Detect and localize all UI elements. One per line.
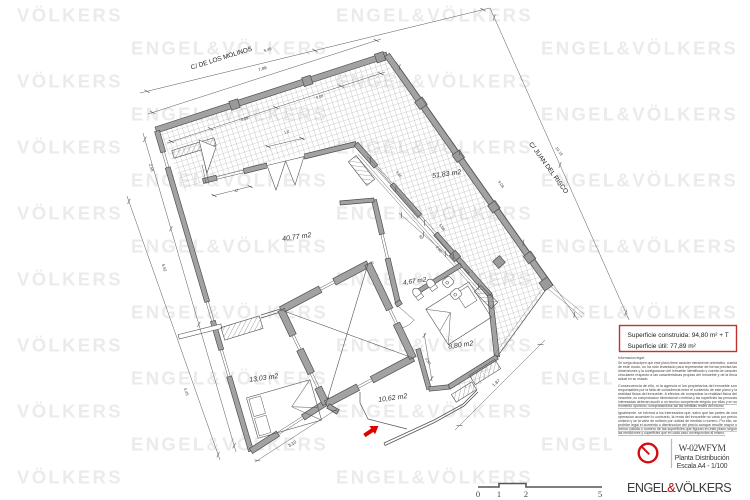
svg-text:ENGEL&VÖLKERS: ENGEL&VÖLKERS xyxy=(541,302,738,323)
svg-text:ENGEL&VÖLKERS: ENGEL&VÖLKERS xyxy=(336,5,533,26)
svg-text:W-02WFYM: W-02WFYM xyxy=(678,444,726,454)
svg-text:ENGEL&VÖLKERS: ENGEL&VÖLKERS xyxy=(541,38,738,59)
svg-text:VÖLKERS: VÖLKERS xyxy=(17,5,123,26)
svg-text:ENGEL&VÖLKERS: ENGEL&VÖLKERS xyxy=(131,434,328,455)
svg-text:ENGEL&VÖLKERS: ENGEL&VÖLKERS xyxy=(541,236,738,257)
svg-text:1: 1 xyxy=(497,489,501,499)
svg-text:ENGEL&VÖLKERS: ENGEL&VÖLKERS xyxy=(541,104,738,125)
svg-text:0: 0 xyxy=(476,489,480,499)
svg-text:VÖLKERS: VÖLKERS xyxy=(17,203,123,224)
svg-text:ENGEL&VÖLKERS: ENGEL&VÖLKERS xyxy=(336,401,533,422)
svg-text:las mediciones y superficies q: las mediciones y superficies que en cada… xyxy=(618,431,725,435)
svg-text:Escala A4 - 1/100: Escala A4 - 1/100 xyxy=(677,463,728,470)
svg-text:VÖLKERS: VÖLKERS xyxy=(17,71,123,92)
svg-text:Superficie útil: 77,89 m²: Superficie útil: 77,89 m² xyxy=(628,343,697,350)
svg-text:ENGEL&VÖLKERS: ENGEL&VÖLKERS xyxy=(627,481,731,495)
svg-text:Superficie construida: 94,80 m: Superficie construida: 94,80 m² + T xyxy=(628,332,729,339)
svg-text:Informacion legal:: Informacion legal: xyxy=(618,356,645,360)
svg-text:5: 5 xyxy=(598,489,602,499)
svg-text:VÖLKERS: VÖLKERS xyxy=(17,401,123,422)
svg-text:VÖLKERS: VÖLKERS xyxy=(17,269,123,290)
svg-text:ENGEL&VÖLKERS: ENGEL&VÖLKERS xyxy=(541,170,738,191)
svg-text:VÖLKERS: VÖLKERS xyxy=(17,335,123,356)
svg-text:Planta Distribución: Planta Distribución xyxy=(675,455,730,462)
svg-text:VÖLKERS: VÖLKERS xyxy=(17,467,123,488)
svg-text:ENGEL&VÖLKERS: ENGEL&VÖLKERS xyxy=(336,467,533,488)
svg-text:momento oportuno, comprobandos: momento oportuno, comprobandose asi las … xyxy=(618,404,725,408)
svg-text:VÖLKERS: VÖLKERS xyxy=(17,137,123,158)
svg-text:2: 2 xyxy=(524,489,528,499)
svg-text:actual en su estado.: actual en su estado. xyxy=(618,377,648,381)
